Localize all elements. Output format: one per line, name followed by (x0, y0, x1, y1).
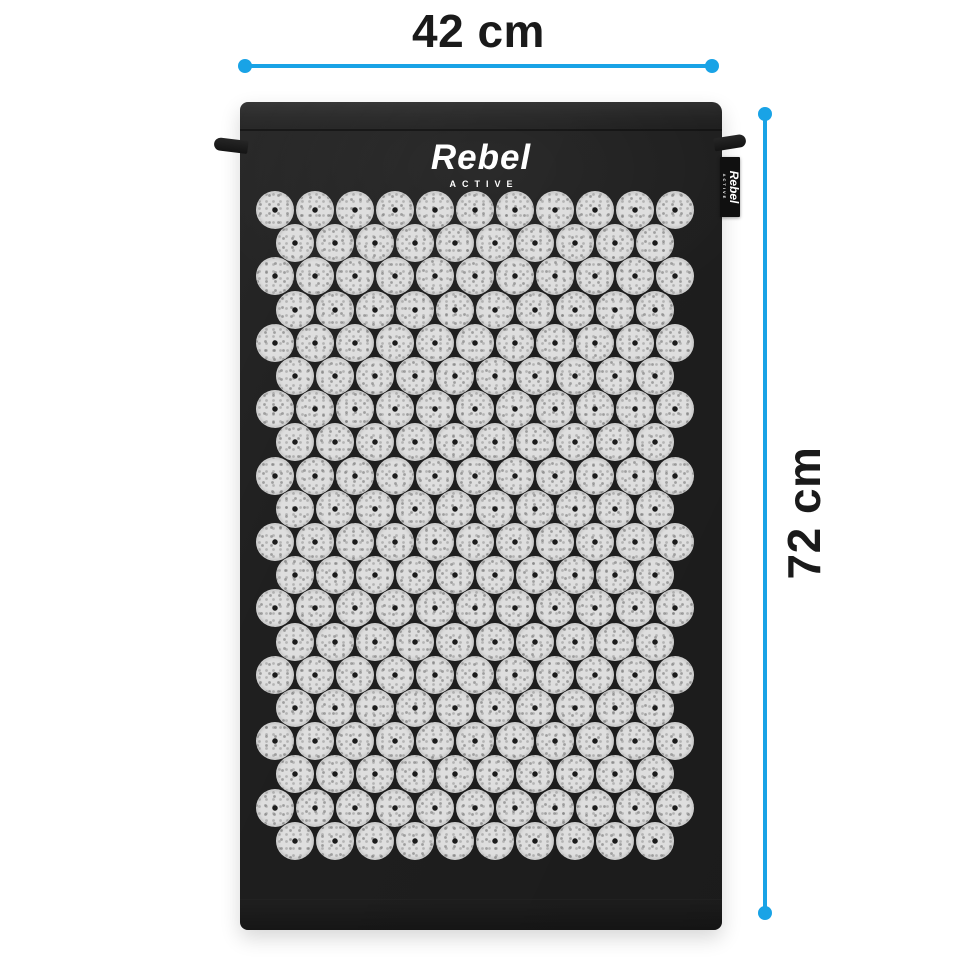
spike-disc (436, 224, 474, 262)
spike-disc (376, 324, 414, 362)
spike-disc (596, 623, 634, 661)
spike-disc (536, 324, 574, 362)
spike-disc (656, 390, 694, 428)
spike-disc (536, 656, 574, 694)
spike-disc (416, 257, 454, 295)
spike-disc (256, 457, 294, 495)
spike-disc (456, 589, 494, 627)
spike-disc (456, 390, 494, 428)
spike-disc (456, 191, 494, 229)
spike-disc (436, 689, 474, 727)
spike-disc (556, 423, 594, 461)
spike-disc (416, 390, 454, 428)
spike-disc (536, 589, 574, 627)
hang-tag-subtitle-text: ACTIVE (722, 157, 727, 217)
spike-disc (396, 556, 434, 594)
spike-disc (376, 722, 414, 760)
spike-disc (656, 324, 694, 362)
spike-disc (636, 291, 674, 329)
spike-disc (336, 457, 374, 495)
spike-disc (656, 191, 694, 229)
spike-disc (316, 822, 354, 860)
spike-disc (476, 423, 514, 461)
spike-disc (376, 656, 414, 694)
spike-disc (416, 722, 454, 760)
spike-disc (516, 556, 554, 594)
spike-disc (416, 656, 454, 694)
spike-disc (616, 324, 654, 362)
spike-disc (396, 357, 434, 395)
spike-disc (576, 457, 614, 495)
spike-disc (356, 755, 394, 793)
spike-disc (496, 257, 534, 295)
spike-disc (516, 357, 554, 395)
spike-disc (416, 589, 454, 627)
spike-disc (276, 423, 314, 461)
spike-disc (276, 224, 314, 262)
spike-disc (456, 324, 494, 362)
spike-disc (276, 357, 314, 395)
spike-disc (376, 589, 414, 627)
spike-disc (256, 656, 294, 694)
spike-disc (636, 357, 674, 395)
spike-disc (356, 291, 394, 329)
spike-disc (276, 291, 314, 329)
spike-disc (456, 656, 494, 694)
spike-disc (556, 822, 594, 860)
spike-disc (656, 589, 694, 627)
spike-disc (536, 523, 574, 561)
spike-disc (396, 224, 434, 262)
spike-disc (496, 722, 534, 760)
spike-disc (636, 490, 674, 528)
spike-disc (516, 822, 554, 860)
spike-disc (416, 324, 454, 362)
spike-disc (316, 689, 354, 727)
spike-disc (356, 224, 394, 262)
spike-disc (596, 423, 634, 461)
spike-disc (436, 423, 474, 461)
spike-disc (656, 656, 694, 694)
spike-disc (476, 490, 514, 528)
spike-disc (376, 789, 414, 827)
spike-disc (616, 589, 654, 627)
spike-disc (396, 623, 434, 661)
spike-disc (256, 789, 294, 827)
spike-disc (436, 556, 474, 594)
spike-disc (496, 390, 534, 428)
spike-disc (396, 291, 434, 329)
spike-disc (476, 357, 514, 395)
spike-disc (276, 822, 314, 860)
height-dimension-line (763, 112, 767, 915)
spike-disc (376, 457, 414, 495)
spike-disc (356, 689, 394, 727)
spike-disc (316, 357, 354, 395)
spike-disc (396, 490, 434, 528)
spike-disc (516, 490, 554, 528)
spike-disc (436, 357, 474, 395)
spike-disc (476, 822, 514, 860)
spike-disc (316, 291, 354, 329)
spike-disc (256, 390, 294, 428)
spike-disc (436, 623, 474, 661)
width-dimension-label: 42 cm (243, 4, 714, 58)
hang-tag-brand-text: Rebel (728, 157, 740, 217)
spike-disc (556, 357, 594, 395)
spike-disc (256, 523, 294, 561)
spike-disc (316, 556, 354, 594)
spike-disc (416, 191, 454, 229)
spike-disc (576, 722, 614, 760)
spike-disc (336, 390, 374, 428)
spike-disc (556, 490, 594, 528)
spike-disc (336, 257, 374, 295)
spike-disc (296, 656, 334, 694)
spike-disc (596, 689, 634, 727)
spike-disc (536, 789, 574, 827)
spike-disc (616, 257, 654, 295)
spike-disc (576, 523, 614, 561)
spike-disc (516, 689, 554, 727)
spike-disc (556, 623, 594, 661)
spike-disc (296, 789, 334, 827)
spike-disc (356, 822, 394, 860)
spike-disc (516, 755, 554, 793)
spike-disc (656, 789, 694, 827)
spike-disc (296, 523, 334, 561)
width-dimension-line (243, 64, 714, 68)
spike-disc (276, 556, 314, 594)
spike-disc (616, 191, 654, 229)
spike-disc (536, 191, 574, 229)
spike-disc (436, 291, 474, 329)
spike-disc (456, 257, 494, 295)
spike-disc (476, 224, 514, 262)
spike-disc (476, 755, 514, 793)
spike-disc (656, 722, 694, 760)
spike-disc (616, 722, 654, 760)
spike-disc (476, 689, 514, 727)
spike-disc (576, 191, 614, 229)
spike-disc (636, 755, 674, 793)
spike-disc (636, 224, 674, 262)
acupressure-mat: Rebel ACTIVE Rebel ACTIVE (240, 102, 722, 930)
spike-disc (616, 390, 654, 428)
spike-disc (596, 357, 634, 395)
spike-disc (456, 722, 494, 760)
spike-disc (356, 556, 394, 594)
spike-disc (476, 291, 514, 329)
spike-disc (336, 722, 374, 760)
spike-disc (496, 191, 534, 229)
spike-disc (396, 822, 434, 860)
spike-disc (536, 257, 574, 295)
spike-disc (256, 722, 294, 760)
spike-disc (356, 623, 394, 661)
spike-disc (616, 656, 654, 694)
spike-disc (656, 523, 694, 561)
spike-disc (316, 490, 354, 528)
spike-disc (516, 623, 554, 661)
spike-disc (296, 457, 334, 495)
spike-disc (296, 589, 334, 627)
spike-disc (516, 224, 554, 262)
spike-disc (536, 390, 574, 428)
spike-disc (256, 324, 294, 362)
spike-disc (396, 423, 434, 461)
spike-disc (416, 457, 454, 495)
spike-disc (576, 789, 614, 827)
spike-disc (256, 589, 294, 627)
spike-disc (636, 623, 674, 661)
spike-disc (336, 324, 374, 362)
spike-disc (316, 423, 354, 461)
spike-disc (256, 257, 294, 295)
spike-disc (496, 656, 534, 694)
spike-disc (536, 457, 574, 495)
spike-disc (376, 523, 414, 561)
spike-disc (316, 755, 354, 793)
spike-disc (496, 789, 534, 827)
spike-disc (296, 324, 334, 362)
spike-disc (456, 523, 494, 561)
spike-disc (596, 224, 634, 262)
spike-disc (496, 457, 534, 495)
spike-disc (336, 589, 374, 627)
spike-disc (456, 457, 494, 495)
spike-disc (416, 789, 454, 827)
spike-disc (496, 523, 534, 561)
spike-disc (516, 291, 554, 329)
height-dimension-label: 72 cm (779, 433, 829, 593)
spike-disc (556, 689, 594, 727)
spike-disc (396, 755, 434, 793)
spike-disc (576, 589, 614, 627)
spike-disc (636, 556, 674, 594)
spike-disc (516, 423, 554, 461)
spike-disc (336, 656, 374, 694)
spike-disc (396, 689, 434, 727)
spike-disc (276, 623, 314, 661)
spike-disc (336, 789, 374, 827)
spike-disc (316, 623, 354, 661)
spike-disc (316, 224, 354, 262)
spike-disc (576, 324, 614, 362)
spike-disc (556, 291, 594, 329)
spike-disc (456, 789, 494, 827)
spike-disc (296, 191, 334, 229)
spike-disc (596, 291, 634, 329)
spike-disc (416, 523, 454, 561)
spike-disc (436, 822, 474, 860)
spike-disc (576, 257, 614, 295)
spike-disc (556, 224, 594, 262)
spike-disc (296, 390, 334, 428)
spike-disc (296, 257, 334, 295)
product-image: 42 cm 72 cm Rebel ACTIVE Rebel ACTIVE (0, 0, 960, 960)
spike-disc (256, 191, 294, 229)
spike-disc (656, 457, 694, 495)
spike-disc (616, 523, 654, 561)
spike-disc (536, 722, 574, 760)
spike-disc (356, 490, 394, 528)
spike-disc (556, 755, 594, 793)
spike-disc (616, 457, 654, 495)
spike-disc (356, 423, 394, 461)
spike-disc (336, 523, 374, 561)
spike-disc (576, 390, 614, 428)
spike-disc (496, 324, 534, 362)
spike-disc (556, 556, 594, 594)
spike-disc (636, 822, 674, 860)
spike-disc (636, 689, 674, 727)
spike-disc (636, 423, 674, 461)
spike-disc (576, 656, 614, 694)
spike-disc (616, 789, 654, 827)
hang-tag: Rebel ACTIVE (720, 157, 740, 217)
spike-disc (296, 722, 334, 760)
spike-disc (376, 191, 414, 229)
spike-disc (596, 556, 634, 594)
spike-disc (596, 822, 634, 860)
spike-disc (496, 589, 534, 627)
spike-disc (436, 755, 474, 793)
spike-disc (276, 490, 314, 528)
spike-disc (476, 623, 514, 661)
spike-disc (656, 257, 694, 295)
spike-disc (276, 689, 314, 727)
spike-disc (276, 755, 314, 793)
spike-disc (596, 490, 634, 528)
spike-disc (436, 490, 474, 528)
spike-disc (356, 357, 394, 395)
spike-disc-grid (240, 102, 722, 930)
spike-disc (376, 257, 414, 295)
spike-disc (336, 191, 374, 229)
hang-tag-inner: Rebel ACTIVE (720, 157, 740, 217)
spike-disc (596, 755, 634, 793)
spike-disc (376, 390, 414, 428)
spike-disc (476, 556, 514, 594)
